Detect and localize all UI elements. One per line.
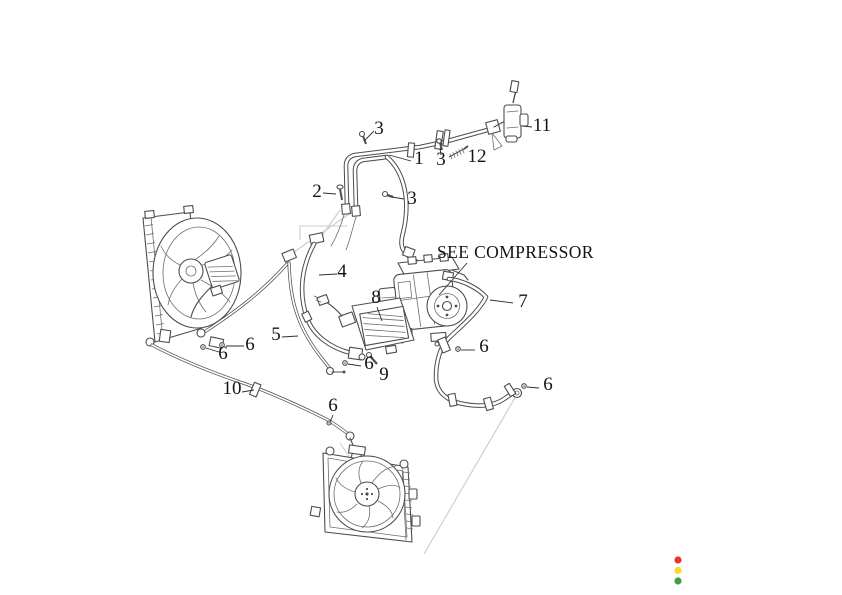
callout-3-mid[interactable]: 3: [436, 149, 446, 170]
callout-4[interactable]: 4: [337, 261, 347, 282]
see-compressor-note: SEE COMPRESSOR: [437, 242, 594, 262]
callouts: 3 1 3 12 11 2 3 4 8 7 5 6 6 6 6 9 6 10 6: [218, 115, 553, 416]
callout-5[interactable]: 5: [271, 324, 281, 345]
status-dot-yellow: [674, 567, 681, 574]
callout-7[interactable]: 7: [518, 291, 528, 312]
callout-11[interactable]: 11: [533, 115, 551, 136]
parts-diagram-page: 3 1 3 12 11 2 3 4 8 7 5 6 6 6 6 9 6 10 6…: [0, 0, 842, 595]
fastener-2-screw: [337, 185, 343, 200]
callout-6-a[interactable]: 6: [479, 336, 489, 357]
valve-11: [504, 81, 528, 142]
callout-9[interactable]: 9: [379, 364, 389, 385]
fastener-3-low: [383, 192, 394, 198]
callout-6-b[interactable]: 6: [245, 334, 255, 355]
fastener-3-top: [360, 132, 367, 145]
status-dot-green: [674, 577, 681, 584]
callout-6-e[interactable]: 6: [543, 374, 553, 395]
condenser-fan-assembly: [310, 445, 420, 542]
callout-6-d[interactable]: 6: [364, 353, 374, 374]
callout-8[interactable]: 8: [371, 287, 381, 308]
ac-lines-diagram: 3 1 3 12 11 2 3 4 8 7 5 6 6 6 6 9 6 10 6…: [0, 0, 842, 595]
status-dot-red: [674, 556, 681, 563]
callout-6-f[interactable]: 6: [328, 395, 338, 416]
status-indicator: [674, 556, 681, 584]
leader-lines: [206, 126, 539, 422]
spring-12: [449, 146, 468, 159]
callout-1[interactable]: 1: [414, 148, 424, 169]
callout-3-top[interactable]: 3: [374, 118, 384, 139]
callout-10[interactable]: 10: [223, 378, 242, 399]
callout-3-low[interactable]: 3: [407, 188, 417, 209]
callout-12[interactable]: 12: [468, 146, 487, 167]
callout-2[interactable]: 2: [312, 181, 322, 202]
radiator-fan-assembly: [143, 205, 241, 348]
callout-6-c[interactable]: 6: [218, 343, 228, 364]
